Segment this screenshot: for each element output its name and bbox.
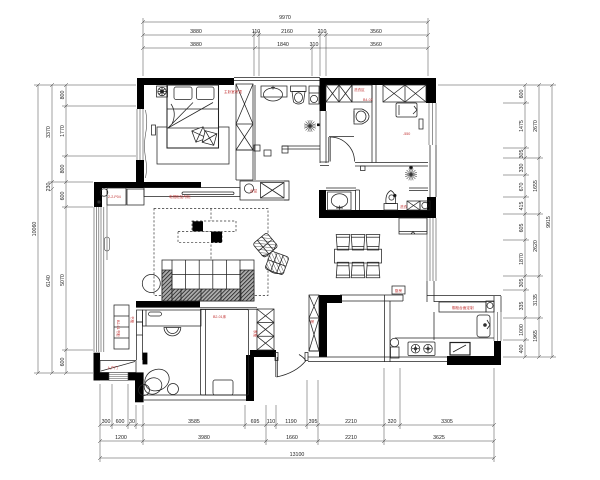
svg-text:1965: 1965 — [533, 330, 539, 342]
svg-text:695: 695 — [251, 419, 260, 425]
svg-text:1660: 1660 — [286, 435, 298, 441]
svg-text:主卧室吊顶: 主卧室吊顶 — [224, 89, 242, 94]
svg-text:305: 305 — [519, 150, 525, 159]
svg-text:3370: 3370 — [46, 126, 52, 138]
svg-text:3980: 3980 — [198, 435, 210, 441]
svg-text:台盆: 台盆 — [250, 188, 258, 193]
svg-text:110: 110 — [252, 29, 260, 35]
svg-text:600: 600 — [60, 192, 66, 201]
svg-text:洗衣: 洗衣 — [400, 204, 408, 209]
svg-text:2670: 2670 — [533, 120, 539, 132]
svg-text:厨房: 厨房 — [395, 288, 403, 293]
svg-text:3560: 3560 — [370, 29, 382, 35]
svg-text:1870: 1870 — [519, 253, 525, 265]
svg-text:3135: 3135 — [533, 294, 539, 306]
svg-text:605: 605 — [519, 224, 525, 233]
svg-text:1655: 1655 — [533, 180, 539, 192]
svg-text:800: 800 — [60, 165, 66, 174]
svg-text:3880: 3880 — [190, 42, 202, 48]
svg-text:入户门: 入户门 — [107, 365, 118, 370]
svg-text:柜: 柜 — [310, 320, 315, 324]
svg-text:10060: 10060 — [32, 222, 38, 237]
svg-text:3880: 3880 — [190, 29, 202, 35]
svg-text:2-2-P04: 2-2-P04 — [108, 195, 121, 199]
svg-text:600: 600 — [519, 90, 525, 99]
svg-text:320: 320 — [388, 419, 397, 425]
svg-text:1840: 1840 — [277, 42, 289, 48]
svg-text:1770: 1770 — [60, 125, 66, 137]
svg-text:5070: 5070 — [60, 274, 66, 286]
svg-text:2210: 2210 — [345, 435, 357, 441]
svg-text:400: 400 — [519, 345, 525, 354]
svg-text:1190: 1190 — [285, 419, 296, 425]
svg-text:衣柜: 衣柜 — [253, 330, 258, 338]
svg-text:3305: 3305 — [441, 419, 453, 425]
svg-text:书柜: 书柜 — [130, 316, 135, 324]
svg-text:9970: 9970 — [279, 15, 291, 21]
svg-text:3585: 3585 — [188, 419, 200, 425]
svg-text:210: 210 — [318, 29, 327, 35]
svg-text:600: 600 — [60, 358, 66, 367]
svg-text:310: 310 — [310, 42, 319, 48]
svg-text:1200: 1200 — [115, 435, 127, 441]
svg-text:2210: 2210 — [345, 419, 357, 425]
svg-text:6140: 6140 — [46, 275, 52, 287]
svg-text:110: 110 — [267, 419, 275, 425]
svg-text:415: 415 — [519, 202, 525, 211]
svg-text:600: 600 — [116, 419, 125, 425]
svg-text:300: 300 — [102, 419, 111, 425]
svg-text:30: 30 — [129, 419, 135, 425]
svg-text:13100: 13100 — [290, 452, 305, 458]
svg-text:橱柜台面定制: 橱柜台面定制 — [452, 305, 474, 310]
svg-text:3625: 3625 — [433, 435, 445, 441]
svg-text:-550: -550 — [403, 132, 410, 136]
svg-text:1000: 1000 — [519, 324, 525, 336]
svg-text:B2-01床: B2-01床 — [213, 314, 227, 319]
svg-text:9915: 9915 — [546, 216, 552, 228]
svg-text:335: 335 — [519, 302, 525, 311]
svg-text:230: 230 — [46, 183, 52, 192]
svg-text:电视柜加吊柜: 电视柜加吊柜 — [169, 194, 191, 199]
svg-text:1475: 1475 — [519, 120, 525, 132]
svg-text:670: 670 — [519, 183, 525, 192]
svg-text:洗衣区: 洗衣区 — [354, 87, 365, 92]
svg-text:305: 305 — [519, 279, 525, 288]
svg-text:800: 800 — [60, 91, 66, 100]
svg-text:395: 395 — [309, 419, 318, 425]
svg-text:2620: 2620 — [533, 240, 539, 252]
svg-text:3560: 3560 — [370, 42, 382, 48]
svg-text:2160: 2160 — [281, 29, 293, 35]
svg-text:B4-02: B4-02 — [363, 98, 373, 102]
svg-text:330: 330 — [519, 164, 525, 173]
svg-text:B2-01书柜: B2-01书柜 — [116, 320, 121, 337]
